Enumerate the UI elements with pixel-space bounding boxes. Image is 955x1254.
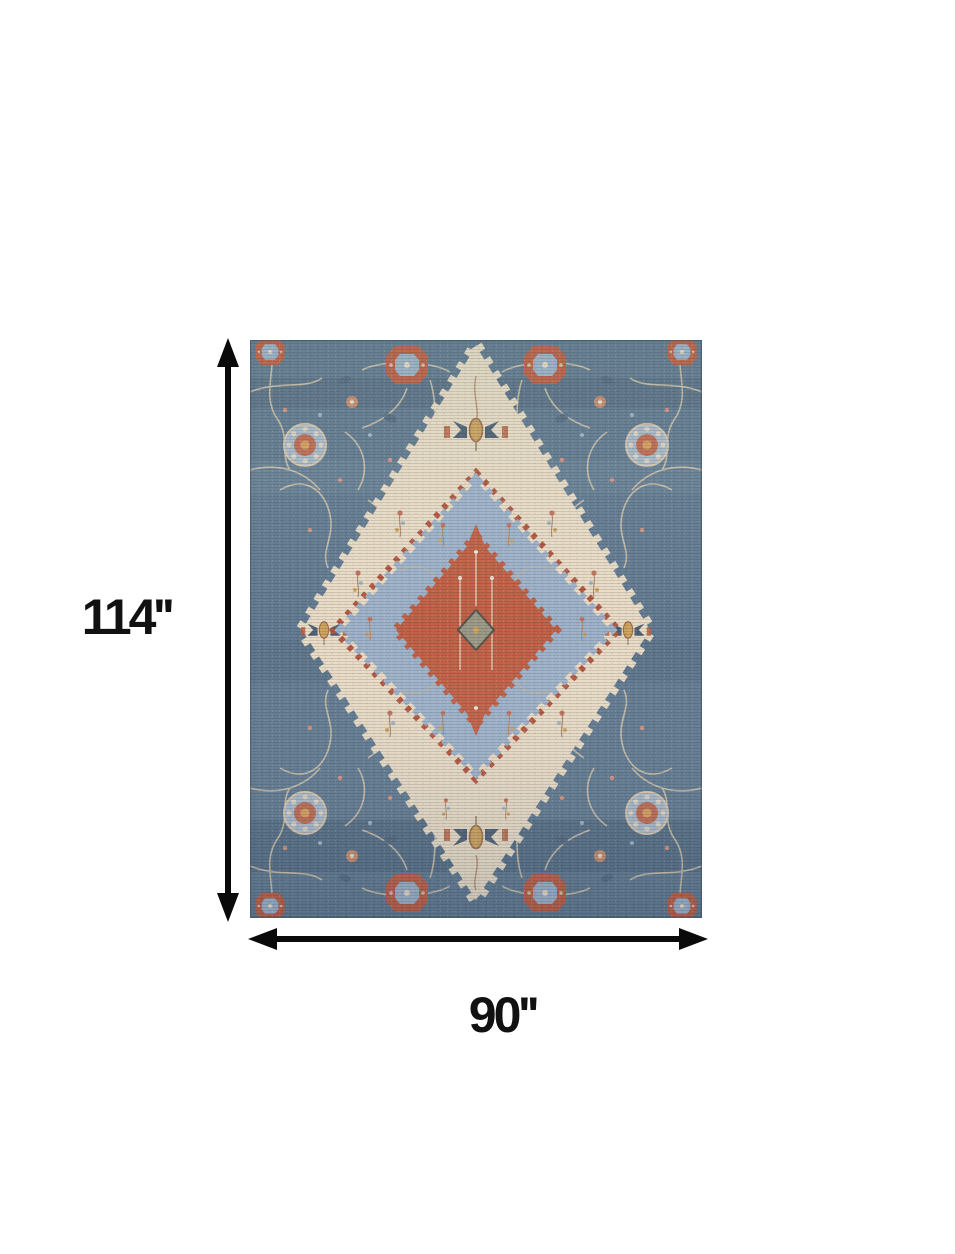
- height-dimension-label: 114'': [39, 592, 214, 642]
- arrow-right-icon: [679, 928, 708, 950]
- rug-tone-overlay: [250, 340, 702, 918]
- rug-photo: [250, 340, 702, 918]
- arrow-left-icon: [248, 928, 277, 950]
- width-dimension-arrow: [248, 928, 708, 950]
- height-dimension-arrow: [217, 338, 239, 922]
- product-dimension-image: 114'' 90'': [0, 0, 955, 1254]
- arrow-up-icon: [217, 338, 239, 367]
- width-dimension-label: 90'': [415, 990, 590, 1040]
- arrow-down-icon: [217, 893, 239, 922]
- rug-artwork: [250, 340, 702, 918]
